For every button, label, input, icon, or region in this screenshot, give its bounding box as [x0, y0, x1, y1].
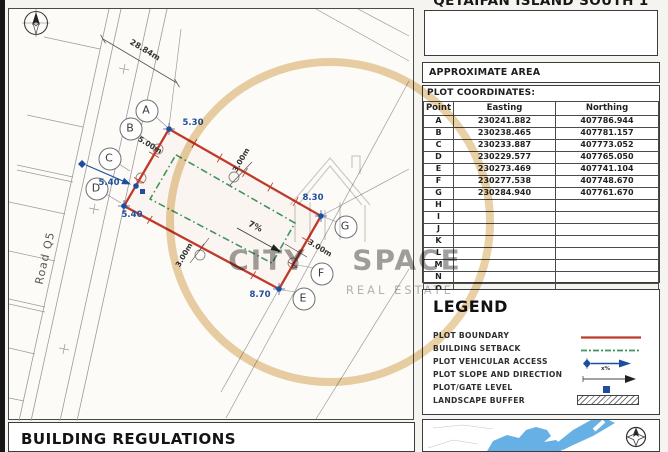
- cell-point: B: [424, 128, 454, 140]
- cell-easting: [454, 200, 556, 212]
- cell-point: G: [424, 188, 454, 200]
- cell-northing: 407741.104: [556, 164, 659, 176]
- table-row: I: [424, 212, 659, 224]
- cell-easting: 230238.465: [454, 128, 556, 140]
- cell-northing: 407781.157: [556, 128, 659, 140]
- legend-label: LANDSCAPE BUFFER: [423, 396, 577, 405]
- legend-item-slope-direction: PLOT SLOPE AND DIRECTION x%: [423, 368, 659, 381]
- legend-item-plot-boundary: PLOT BOUNDARY: [423, 329, 659, 342]
- cell-easting: 230284.940: [454, 188, 556, 200]
- gate-level-symbol: [577, 381, 647, 394]
- table-row: B230238.465407781.157: [424, 128, 659, 140]
- cell-easting: [454, 260, 556, 272]
- table-row: C230233.887407773.052: [424, 140, 659, 152]
- cell-northing: 407765.050: [556, 152, 659, 164]
- point-label-c: C: [105, 152, 113, 165]
- table-row: M: [424, 260, 659, 272]
- level-label-mid: 5.40: [99, 178, 120, 188]
- table-row: F230277.538407748.670: [424, 176, 659, 188]
- cell-northing: [556, 200, 659, 212]
- cell-easting: [454, 272, 556, 284]
- page: Road Q5 28.84m 5.00m 3.00m 3.00m 3.00m 7…: [0, 0, 668, 452]
- legend-label: PLOT/GATE LEVEL: [423, 383, 577, 392]
- legend-title: LEGEND: [423, 290, 659, 316]
- cell-point: K: [424, 236, 454, 248]
- landscape-buffer-symbol: [577, 394, 647, 407]
- approximate-area-label: APPROXIMATE AREA: [423, 63, 659, 78]
- legend-label: PLOT VEHICULAR ACCESS: [423, 357, 577, 366]
- cell-northing: [556, 224, 659, 236]
- level-label-p3: 8.70: [250, 290, 271, 300]
- slope-direction-symbol: x%: [577, 368, 647, 381]
- scan-edge-strip: [0, 0, 5, 452]
- table-row: K: [424, 236, 659, 248]
- point-label-d: D: [92, 182, 100, 195]
- point-label-b: B: [126, 122, 134, 135]
- road-chainage-marks: [59, 64, 129, 354]
- key-map: [423, 420, 660, 452]
- cell-easting: [454, 212, 556, 224]
- cell-easting: [454, 224, 556, 236]
- cell-point: F: [424, 176, 454, 188]
- cell-point: N: [424, 272, 454, 284]
- page-title: QETAIFAN ISLAND SOUTH 1: [420, 0, 662, 9]
- site-plan-linework: [9, 9, 415, 421]
- cell-easting: 230277.538: [454, 176, 556, 188]
- building-setback-symbol: [577, 342, 647, 355]
- plot-boundary-symbol: [577, 329, 647, 342]
- cell-northing: [556, 212, 659, 224]
- plot-coordinates-label: PLOT COORDINATES:: [423, 86, 659, 101]
- coordinates-table: Point Easting Northing A230241.882407786…: [423, 101, 659, 296]
- cell-easting: 230233.887: [454, 140, 556, 152]
- cell-northing: 407761.670: [556, 188, 659, 200]
- col-point: Point: [424, 102, 454, 116]
- legend-label: BUILDING SETBACK: [423, 344, 577, 353]
- cell-northing: [556, 248, 659, 260]
- cell-easting: 230241.882: [454, 116, 556, 128]
- title-info-box: [424, 10, 658, 56]
- level-label-p1: 5.30: [183, 118, 204, 128]
- table-row: D230229.577407765.050: [424, 152, 659, 164]
- cell-point: I: [424, 212, 454, 224]
- site-plan-panel: [8, 8, 414, 420]
- approximate-area-box: APPROXIMATE AREA: [422, 62, 660, 83]
- table-row: L: [424, 248, 659, 260]
- cell-point: C: [424, 140, 454, 152]
- point-label-g: G: [341, 220, 350, 233]
- point-label-f: F: [318, 267, 324, 280]
- cell-point: E: [424, 164, 454, 176]
- level-label-p2: 8.30: [303, 193, 324, 203]
- cell-northing: 407748.670: [556, 176, 659, 188]
- point-label-e: E: [300, 292, 307, 305]
- legend-item-gate-level: PLOT/GATE LEVEL: [423, 381, 659, 394]
- table-row: H: [424, 200, 659, 212]
- legend-item-landscape-buffer: LANDSCAPE BUFFER: [423, 394, 659, 407]
- building-regulations-box: BUILDING REGULATIONS: [8, 422, 415, 452]
- cell-easting: 230273.469: [454, 164, 556, 176]
- west-parcel-lines: [9, 37, 100, 401]
- table-row: J: [424, 224, 659, 236]
- legend-box: LEGEND PLOT BOUNDARY BUILDING SETBACK PL…: [422, 289, 660, 415]
- vehicular-access-symbol: [577, 355, 647, 368]
- plot-coordinates-box: PLOT COORDINATES: Point Easting Northing…: [422, 85, 660, 283]
- map-compass-icon: [627, 428, 646, 447]
- legend-label: PLOT SLOPE AND DIRECTION: [423, 370, 577, 379]
- cell-northing: 407773.052: [556, 140, 659, 152]
- col-easting: Easting: [454, 102, 556, 116]
- table-row: G230284.940407761.670: [424, 188, 659, 200]
- legend-label: PLOT BOUNDARY: [423, 331, 577, 340]
- col-northing: Northing: [556, 102, 659, 116]
- table-row: N: [424, 272, 659, 284]
- level-label-p4: 5.40: [122, 210, 143, 220]
- cell-point: J: [424, 224, 454, 236]
- legend-item-building-setback: BUILDING SETBACK: [423, 342, 659, 355]
- plot-boundary: [124, 129, 321, 289]
- cell-northing: [556, 236, 659, 248]
- cell-point: L: [424, 248, 454, 260]
- slope-symbol-label: x%: [601, 366, 610, 372]
- cell-point: D: [424, 152, 454, 164]
- legend-item-vehicular-access: PLOT VEHICULAR ACCESS: [423, 355, 659, 368]
- cell-point: M: [424, 260, 454, 272]
- island-strip: [553, 420, 615, 450]
- table-row: A230241.882407786.944: [424, 116, 659, 128]
- table-header-row: Point Easting Northing: [424, 102, 659, 116]
- table-row: E230273.469407741.104: [424, 164, 659, 176]
- cell-northing: 407786.944: [556, 116, 659, 128]
- cell-northing: [556, 272, 659, 284]
- island-shape: [486, 427, 564, 452]
- cell-easting: 230229.577: [454, 152, 556, 164]
- cell-point: H: [424, 200, 454, 212]
- point-label-a: A: [142, 104, 150, 117]
- cell-point: A: [424, 116, 454, 128]
- cell-northing: [556, 260, 659, 272]
- key-map-box: [422, 419, 660, 452]
- compass-icon: [22, 9, 50, 37]
- cell-easting: [454, 248, 556, 260]
- cell-easting: [454, 236, 556, 248]
- building-regulations-title: BUILDING REGULATIONS: [9, 423, 414, 448]
